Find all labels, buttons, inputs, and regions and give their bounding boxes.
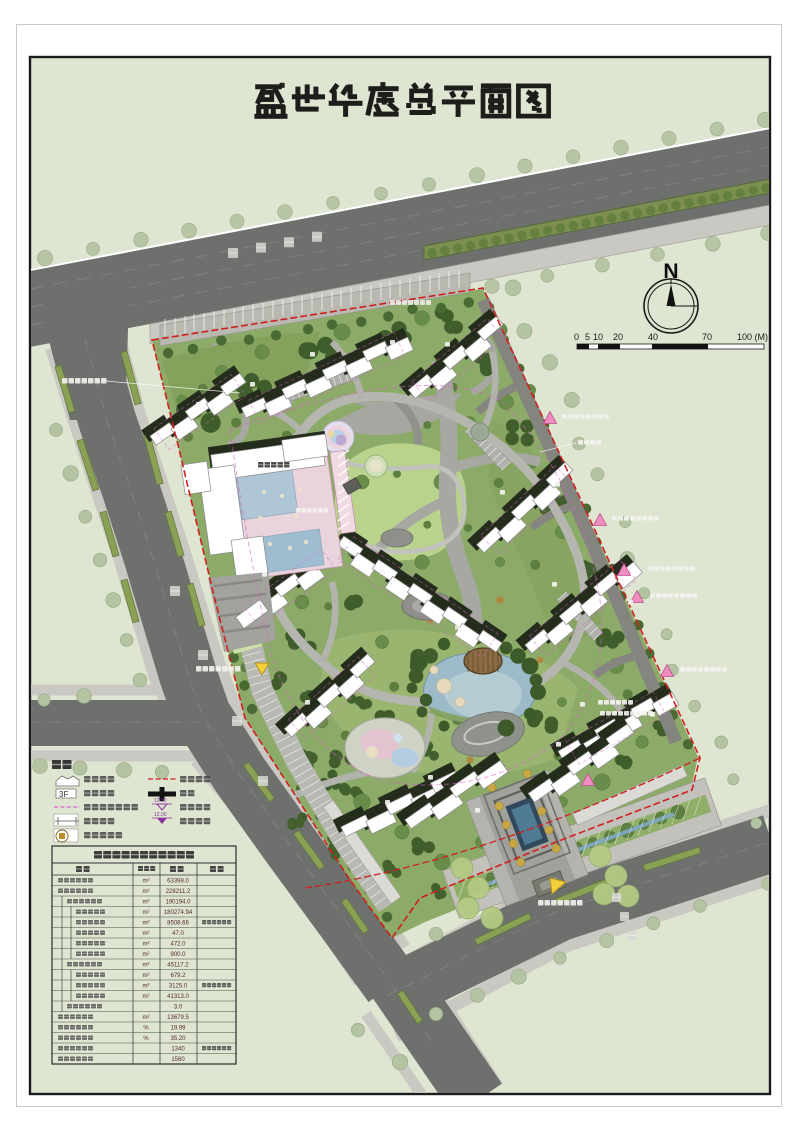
svg-text:m²: m² (143, 889, 150, 895)
svg-text:12.00: 12.00 (154, 812, 167, 818)
svg-text:8508.66: 8508.66 (167, 921, 189, 927)
svg-text:41313.0: 41313.0 (167, 994, 189, 1000)
svg-text:m²: m² (143, 879, 150, 885)
svg-text:3.0: 3.0 (174, 1005, 183, 1011)
svg-text:19.99: 19.99 (170, 1026, 186, 1032)
svg-text:m²: m² (143, 942, 150, 948)
svg-text:1340: 1340 (171, 1047, 185, 1053)
svg-text:10: 10 (593, 332, 603, 342)
svg-text:13679.5: 13679.5 (167, 1015, 189, 1021)
svg-text:40: 40 (648, 332, 658, 342)
svg-text:m²: m² (143, 973, 150, 979)
svg-text:228211.2: 228211.2 (166, 889, 191, 895)
svg-text:45117.2: 45117.2 (167, 963, 189, 969)
svg-text:20: 20 (613, 332, 623, 342)
svg-text:m²: m² (143, 994, 150, 1000)
svg-text:5: 5 (585, 332, 590, 342)
svg-text:900.0: 900.0 (170, 952, 186, 958)
svg-text:472.0: 472.0 (170, 942, 186, 948)
svg-text:180274.94: 180274.94 (164, 910, 193, 916)
svg-text:m²: m² (143, 984, 150, 990)
svg-text:m²: m² (143, 963, 150, 969)
svg-text:%: % (143, 1026, 149, 1032)
svg-text:m²: m² (143, 931, 150, 937)
svg-text:3F: 3F (59, 790, 68, 799)
svg-text:679.2: 679.2 (170, 973, 186, 979)
svg-text:47.0: 47.0 (172, 931, 184, 937)
svg-text:12.30: 12.30 (154, 798, 167, 804)
svg-text:100 (M): 100 (M) (737, 332, 768, 342)
svg-text:m²: m² (143, 1015, 150, 1021)
svg-text:m²: m² (143, 900, 150, 906)
svg-text:m²: m² (143, 921, 150, 927)
svg-text:0: 0 (574, 332, 579, 342)
svg-text:3125.0: 3125.0 (169, 984, 188, 990)
svg-text:m²: m² (143, 910, 150, 916)
svg-text:70: 70 (702, 332, 712, 342)
svg-text:N: N (663, 260, 678, 283)
svg-text:63398.0: 63398.0 (167, 879, 189, 885)
svg-text:35.20: 35.20 (170, 1036, 186, 1042)
svg-text:%: % (143, 1036, 149, 1042)
svg-text:190194.0: 190194.0 (165, 900, 191, 906)
svg-text:1560: 1560 (171, 1057, 185, 1063)
svg-text:m²: m² (143, 952, 150, 958)
